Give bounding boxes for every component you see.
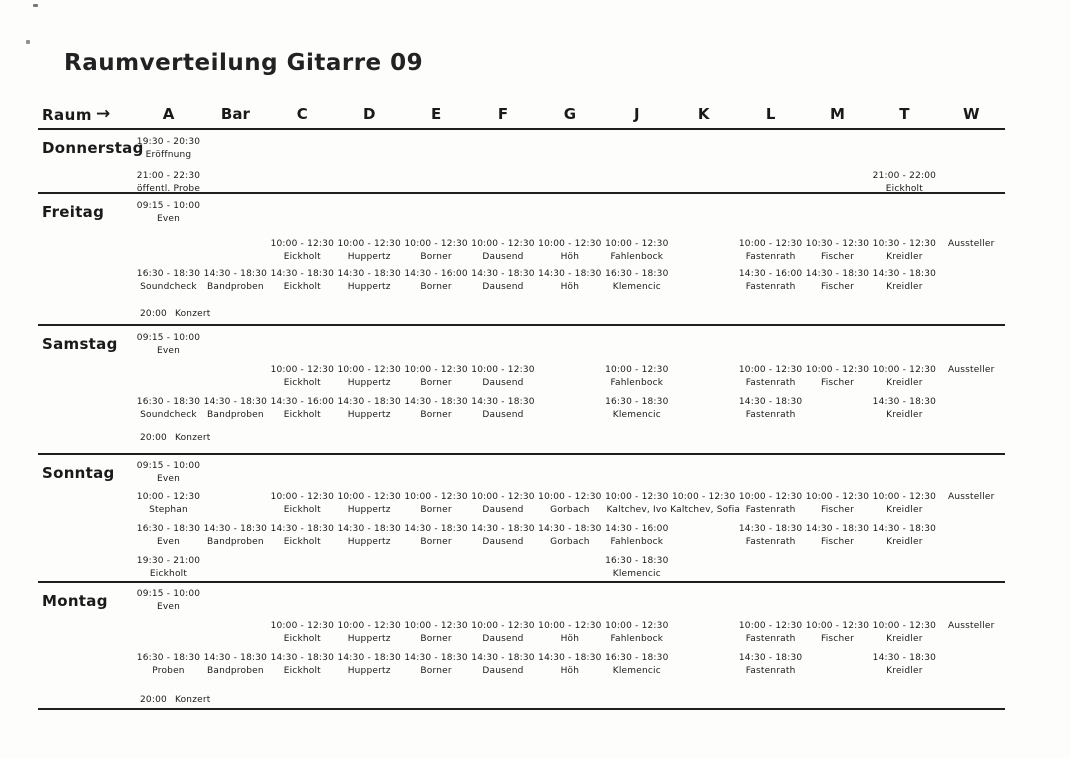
cell-person: Konzert [175, 694, 211, 707]
cell-time: 10:00 - 12:30 [336, 620, 403, 633]
scanned-schedule-page: { "document": { "title": "Raumverteilung… [0, 0, 1070, 758]
schedule-cell: 10:00 - 12:30Borner [403, 491, 470, 517]
schedule-cell: 14:30 - 18:30Dausend [470, 268, 537, 294]
cell-person: Eickholt [135, 568, 202, 581]
cell-person: Konzert [175, 432, 211, 445]
cell-time: 10:00 - 12:30 [603, 238, 670, 251]
schedule-cell: 20:00Konzert [135, 694, 280, 707]
schedule-cell: 21:00 - 22:30öffentl. Probe [135, 170, 202, 196]
schedule-cell: 14:30 - 18:30Bandproben [202, 396, 269, 422]
schedule-cell: 10:00 - 12:30Fahlenbock [603, 238, 670, 264]
schedule-cell: 14:30 - 18:30Dausend [470, 652, 537, 678]
cell-time: 14:30 - 18:30 [269, 652, 336, 665]
scan-artifact [33, 4, 38, 7]
schedule-cell: 10:00 - 12:30Huppertz [336, 238, 403, 264]
schedule-cell: 10:00 - 12:30Borner [403, 620, 470, 646]
cell-time: 20:00 [140, 432, 167, 445]
schedule-cell: Aussteller [938, 238, 1005, 251]
cell-time: 10:00 - 12:30 [804, 364, 871, 377]
cell-time: 14:30 - 18:30 [403, 652, 470, 665]
schedule-cell: 14:30 - 18:30Huppertz [336, 396, 403, 422]
cell-time: 10:00 - 12:30 [603, 491, 670, 504]
day-section-freitag: Freitag09:15 - 10:00Even10:00 - 12:30Eic… [38, 194, 1005, 326]
cell-time: 19:30 - 21:00 [135, 555, 202, 568]
cell-person: Dausend [470, 251, 537, 264]
cell-person: Konzert [175, 308, 211, 321]
cell-person: Aussteller [938, 238, 1005, 251]
cell-time: 10:00 - 12:30 [737, 364, 804, 377]
schedule-cell: 10:00 - 12:30Kreidler [871, 620, 938, 646]
schedule-cell: 14:30 - 18:30Fastenrath [737, 652, 804, 678]
cell-time: 10:30 - 12:30 [871, 238, 938, 251]
cell-person: Borner [403, 504, 470, 517]
cell-time: 19:30 - 20:30 [135, 136, 202, 149]
cell-time: 14:30 - 18:30 [737, 652, 804, 665]
schedule-cell: 10:00 - 12:30Dausend [470, 364, 537, 390]
cell-person: Kreidler [871, 281, 938, 294]
schedule-cell: 14:30 - 18:30Dausend [470, 396, 537, 422]
schedule-cell: 14:30 - 18:30Eickholt [269, 523, 336, 549]
cell-time: 10:00 - 12:30 [871, 620, 938, 633]
schedule-table: Raum → ABarCDEFGJKLMTW Donnerstag19:30 -… [38, 104, 1005, 710]
cell-time: 14:30 - 18:30 [536, 268, 603, 281]
cell-person: Fastenrath [737, 633, 804, 646]
cell-person: Kreidler [871, 251, 938, 264]
schedule-cell: 09:15 - 10:00Even [135, 460, 202, 486]
cell-time: 10:00 - 12:30 [871, 491, 938, 504]
column-header-a: A [135, 105, 202, 123]
cell-time: 14:30 - 18:30 [871, 396, 938, 409]
cell-time: 14:30 - 18:30 [336, 523, 403, 536]
cell-person: Höh [536, 281, 603, 294]
cell-time: 14:30 - 16:00 [737, 268, 804, 281]
cell-person: Borner [403, 665, 470, 678]
schedule-cell: 14:30 - 18:30Borner [403, 523, 470, 549]
cell-person: Soundcheck [135, 409, 202, 422]
column-header-m: M [804, 105, 871, 123]
schedule-cell: Aussteller [938, 620, 1005, 633]
cell-time: 10:00 - 12:30 [470, 238, 537, 251]
cell-person: Bandproben [202, 409, 269, 422]
column-header-k: K [670, 105, 737, 123]
cell-time: 14:30 - 18:30 [336, 396, 403, 409]
cell-time: 14:30 - 18:30 [403, 523, 470, 536]
cell-time: 10:00 - 12:30 [603, 364, 670, 377]
cell-person: Gorbach [536, 536, 603, 549]
schedule-cell: 19:30 - 21:00Eickholt [135, 555, 202, 581]
header-row: Raum → ABarCDEFGJKLMTW [38, 104, 1005, 130]
day-section-samstag: Samstag09:15 - 10:00Even10:00 - 12:30Eic… [38, 326, 1005, 455]
cell-person: Kreidler [871, 377, 938, 390]
cell-person: Fahlenbock [603, 377, 670, 390]
schedule-cell: 10:00 - 12:30Fischer [804, 364, 871, 390]
cell-time: 14:30 - 18:30 [536, 652, 603, 665]
cell-time: 10:00 - 12:30 [603, 620, 670, 633]
schedule-cell: 16:30 - 18:30Proben [135, 652, 202, 678]
cell-person: Dausend [470, 633, 537, 646]
cell-person: Dausend [470, 665, 537, 678]
schedule-cell: 10:00 - 12:30Dausend [470, 238, 537, 264]
cell-person: Even [135, 601, 202, 614]
cell-time: 14:30 - 18:30 [336, 652, 403, 665]
schedule-cell: 10:00 - 12:30Huppertz [336, 491, 403, 517]
schedule-cell: 14:30 - 18:30Gorbach [536, 523, 603, 549]
schedule-cell: 20:00Konzert [135, 308, 280, 321]
scan-artifact [26, 40, 30, 44]
cell-person: Fischer [804, 377, 871, 390]
schedule-cell: 14:30 - 18:30Fischer [804, 523, 871, 549]
cell-person: Fahlenbock [603, 633, 670, 646]
schedule-cell: 20:00Konzert [135, 432, 280, 445]
cell-person: Höh [536, 251, 603, 264]
schedule-cell: 14:30 - 18:30Kreidler [871, 268, 938, 294]
schedule-cell: 16:30 - 18:30Klemencic [603, 396, 670, 422]
schedule-cell: 14:30 - 18:30Eickholt [269, 652, 336, 678]
schedule-cell: 14:30 - 18:30Kreidler [871, 396, 938, 422]
cell-person: Klemencic [603, 568, 670, 581]
column-header-bar: Bar [202, 105, 269, 123]
schedule-cell: 16:30 - 18:30Klemencic [603, 652, 670, 678]
cell-person: Fastenrath [737, 377, 804, 390]
cell-time: 10:00 - 12:30 [269, 620, 336, 633]
schedule-cell: 10:00 - 12:30Dausend [470, 491, 537, 517]
cell-person: Eickholt [269, 377, 336, 390]
cell-person: Fischer [804, 251, 871, 264]
cell-person: Fastenrath [737, 409, 804, 422]
schedule-cell: 10:00 - 12:30Fastenrath [737, 620, 804, 646]
column-header-c: C [269, 105, 336, 123]
cell-person: Kreidler [871, 409, 938, 422]
cell-time: 10:00 - 12:30 [269, 491, 336, 504]
cell-time: 10:00 - 12:30 [269, 364, 336, 377]
day-section-sonntag: Sonntag09:15 - 10:00Even10:00 - 12:30Ste… [38, 455, 1005, 583]
cell-person: Huppertz [336, 281, 403, 294]
cell-time: 10:00 - 12:30 [336, 238, 403, 251]
cell-person: Höh [536, 665, 603, 678]
cell-time: 10:00 - 12:30 [536, 491, 603, 504]
cell-time: 10:00 - 12:30 [470, 620, 537, 633]
day-section-donnerstag: Donnerstag19:30 - 20:30Eröffnung21:00 - … [38, 130, 1005, 194]
cell-time: 21:00 - 22:00 [871, 170, 938, 183]
day-label: Samstag [42, 335, 134, 353]
column-header-j: J [603, 105, 670, 123]
schedule-cell: 10:00 - 12:30Huppertz [336, 364, 403, 390]
column-header-e: E [403, 105, 470, 123]
day-label: Freitag [42, 203, 134, 221]
cell-person: Borner [403, 409, 470, 422]
cell-person: Eröffnung [135, 149, 202, 162]
cell-person: Even [135, 536, 202, 549]
cell-time: 10:00 - 12:30 [737, 491, 804, 504]
cell-person: Eickholt [269, 633, 336, 646]
cell-time: 09:15 - 10:00 [135, 200, 202, 213]
schedule-cell: 19:30 - 20:30Eröffnung [135, 136, 202, 162]
cell-time: 16:30 - 18:30 [135, 652, 202, 665]
column-header-l: L [737, 105, 804, 123]
cell-person: Fischer [804, 281, 871, 294]
schedule-cell: 10:30 - 12:30Kreidler [871, 238, 938, 264]
cell-person: Eickholt [269, 665, 336, 678]
schedule-cell: 10:00 - 12:30Borner [403, 364, 470, 390]
schedule-cell: 10:00 - 12:30Eickholt [269, 620, 336, 646]
schedule-cell: 14:30 - 18:30Huppertz [336, 268, 403, 294]
cell-person: Fastenrath [737, 536, 804, 549]
cell-time: 14:30 - 18:30 [470, 268, 537, 281]
cell-person: Gorbach [536, 504, 603, 517]
cell-time: 14:30 - 18:30 [336, 268, 403, 281]
cell-time: 10:00 - 12:30 [804, 491, 871, 504]
schedule-cell: 09:15 - 10:00Even [135, 332, 202, 358]
header-row-label: Raum [42, 106, 92, 124]
cell-time: 10:00 - 12:30 [737, 620, 804, 633]
cell-person: Bandproben [202, 536, 269, 549]
day-label: Donnerstag [42, 139, 134, 157]
schedule-cell: 16:30 - 18:30Klemencic [603, 555, 670, 581]
schedule-cell: 10:00 - 12:30Kaltchev, Sofia [670, 491, 737, 517]
cell-time: 14:30 - 18:30 [871, 523, 938, 536]
cell-time: 14:30 - 18:30 [871, 268, 938, 281]
schedule-cell: 14:30 - 18:30Borner [403, 652, 470, 678]
cell-person: Borner [403, 377, 470, 390]
cell-time: 16:30 - 18:30 [603, 396, 670, 409]
cell-time: 10:00 - 12:30 [403, 620, 470, 633]
schedule-cell: 14:30 - 18:30Huppertz [336, 523, 403, 549]
cell-time: 14:30 - 18:30 [804, 268, 871, 281]
schedule-cell: 10:30 - 12:30Fischer [804, 238, 871, 264]
cell-time: 14:30 - 18:30 [202, 523, 269, 536]
schedule-cell: Aussteller [938, 364, 1005, 377]
schedule-cell: 14:30 - 18:30Fischer [804, 268, 871, 294]
cell-time: 10:00 - 12:30 [470, 364, 537, 377]
schedule-cell: 09:15 - 10:00Even [135, 200, 202, 226]
cell-time: 10:00 - 12:30 [536, 238, 603, 251]
schedule-cell: 10:00 - 12:30Höh [536, 238, 603, 264]
cell-person: Dausend [470, 409, 537, 422]
schedule-cell: 14:30 - 18:30Fastenrath [737, 396, 804, 422]
schedule-cell: 10:00 - 12:30Eickholt [269, 238, 336, 264]
schedule-cell: 10:00 - 12:30Fastenrath [737, 491, 804, 517]
cell-person: Huppertz [336, 665, 403, 678]
schedule-cell: 21:00 - 22:00Eickholt [871, 170, 938, 196]
cell-person: Kaltchev, Ivo [603, 504, 670, 517]
cell-time: 10:00 - 12:30 [737, 238, 804, 251]
cell-time: 14:30 - 18:30 [804, 523, 871, 536]
cell-person: Eickholt [269, 536, 336, 549]
schedule-cell: 14:30 - 16:00Fahlenbock [603, 523, 670, 549]
cell-person: Aussteller [938, 491, 1005, 504]
cell-person: Borner [403, 633, 470, 646]
cell-person: Klemencic [603, 665, 670, 678]
cell-time: 14:30 - 18:30 [871, 652, 938, 665]
cell-person: Soundcheck [135, 281, 202, 294]
cell-person: Eickholt [269, 251, 336, 264]
cell-person: Kreidler [871, 504, 938, 517]
cell-time: 10:00 - 12:30 [536, 620, 603, 633]
page-title: Raumverteilung Gitarre 09 [64, 50, 423, 76]
cell-time: 10:00 - 12:30 [336, 364, 403, 377]
cell-time: 10:00 - 12:30 [470, 491, 537, 504]
cell-time: 10:00 - 12:30 [403, 491, 470, 504]
cell-person: Dausend [470, 281, 537, 294]
cell-time: 10:00 - 12:30 [403, 364, 470, 377]
cell-person: Fahlenbock [603, 251, 670, 264]
column-header-d: D [336, 105, 403, 123]
schedule-cell: 14:30 - 18:30Höh [536, 268, 603, 294]
schedule-cell: 14:30 - 18:30Bandproben [202, 652, 269, 678]
schedule-cell: 14:30 - 18:30Fastenrath [737, 523, 804, 549]
schedule-cell: 09:15 - 10:00Even [135, 588, 202, 614]
cell-time: 14:30 - 18:30 [737, 523, 804, 536]
cell-person: Fahlenbock [603, 536, 670, 549]
cell-person: Aussteller [938, 620, 1005, 633]
cell-person: Klemencic [603, 281, 670, 294]
cell-time: 20:00 [140, 694, 167, 707]
cell-person: Fastenrath [737, 251, 804, 264]
schedule-cell: 14:30 - 18:30Eickholt [269, 268, 336, 294]
schedule-cell: Aussteller [938, 491, 1005, 504]
schedule-cell: 10:00 - 12:30Höh [536, 620, 603, 646]
cell-time: 09:15 - 10:00 [135, 332, 202, 345]
cell-person: Borner [403, 536, 470, 549]
schedule-cell: 14:30 - 16:00Eickholt [269, 396, 336, 422]
schedule-cell: 14:30 - 18:30Bandproben [202, 523, 269, 549]
column-header-t: T [871, 105, 938, 123]
cell-time: 16:30 - 18:30 [135, 523, 202, 536]
cell-time: 10:00 - 12:30 [336, 491, 403, 504]
cell-time: 10:00 - 12:30 [804, 620, 871, 633]
cell-person: Borner [403, 251, 470, 264]
cell-time: 16:30 - 18:30 [603, 652, 670, 665]
schedule-cell: 10:00 - 12:30Fahlenbock [603, 364, 670, 390]
cell-time: 10:00 - 12:30 [403, 238, 470, 251]
schedule-cell: 14:30 - 18:30Höh [536, 652, 603, 678]
cell-person: Huppertz [336, 536, 403, 549]
cell-person: Kreidler [871, 536, 938, 549]
cell-time: 14:30 - 18:30 [202, 268, 269, 281]
cell-person: Borner [403, 281, 470, 294]
cell-person: Aussteller [938, 364, 1005, 377]
cell-time: 16:30 - 18:30 [603, 555, 670, 568]
cell-time: 14:30 - 18:30 [269, 268, 336, 281]
cell-time: 16:30 - 18:30 [135, 396, 202, 409]
cell-person: Bandproben [202, 281, 269, 294]
cell-time: 14:30 - 16:00 [269, 396, 336, 409]
column-header-f: F [470, 105, 537, 123]
schedule-cell: 14:30 - 18:30Huppertz [336, 652, 403, 678]
cell-time: 10:00 - 12:30 [670, 491, 737, 504]
cell-person: Huppertz [336, 633, 403, 646]
schedule-cell: 10:00 - 12:30Fahlenbock [603, 620, 670, 646]
cell-time: 10:00 - 12:30 [269, 238, 336, 251]
cell-time: 14:30 - 18:30 [470, 652, 537, 665]
cell-time: 14:30 - 18:30 [470, 523, 537, 536]
right-arrow-icon: → [96, 104, 110, 124]
day-label: Sonntag [42, 464, 134, 482]
cell-time: 16:30 - 18:30 [603, 268, 670, 281]
cell-time: 14:30 - 16:00 [403, 268, 470, 281]
cell-time: 14:30 - 18:30 [536, 523, 603, 536]
cell-time: 20:00 [140, 308, 167, 321]
cell-time: 14:30 - 18:30 [470, 396, 537, 409]
cell-person: Huppertz [336, 409, 403, 422]
schedule-cell: 10:00 - 12:30Borner [403, 238, 470, 264]
schedule-cell: 10:00 - 12:30Eickholt [269, 491, 336, 517]
day-label: Montag [42, 592, 134, 610]
schedule-cell: 16:30 - 18:30Even [135, 523, 202, 549]
cell-time: 10:30 - 12:30 [804, 238, 871, 251]
schedule-cell: 14:30 - 18:30Kreidler [871, 523, 938, 549]
cell-person: Even [135, 213, 202, 226]
cell-person: Fastenrath [737, 665, 804, 678]
cell-person: Kreidler [871, 665, 938, 678]
cell-person: Huppertz [336, 504, 403, 517]
cell-time: 14:30 - 18:30 [737, 396, 804, 409]
schedule-cell: 16:30 - 18:30Klemencic [603, 268, 670, 294]
schedule-cell: 10:00 - 12:30Kreidler [871, 491, 938, 517]
cell-person: Eickholt [269, 504, 336, 517]
cell-person: Eickholt [269, 409, 336, 422]
schedule-cell: 14:30 - 18:30Bandproben [202, 268, 269, 294]
cell-time: 16:30 - 18:30 [135, 268, 202, 281]
schedule-cell: 10:00 - 12:30Stephan [135, 491, 202, 517]
schedule-cell: 10:00 - 12:30Kreidler [871, 364, 938, 390]
column-header-w: W [938, 105, 1005, 123]
cell-time: 14:30 - 16:00 [603, 523, 670, 536]
schedule-cell: 14:30 - 18:30Kreidler [871, 652, 938, 678]
schedule-cell: 14:30 - 16:00Borner [403, 268, 470, 294]
cell-person: Kreidler [871, 633, 938, 646]
cell-time: 10:00 - 12:30 [871, 364, 938, 377]
cell-time: 09:15 - 10:00 [135, 588, 202, 601]
cell-person: Huppertz [336, 251, 403, 264]
cell-person: Even [135, 345, 202, 358]
cell-person: Dausend [470, 504, 537, 517]
schedule-cell: 14:30 - 18:30Dausend [470, 523, 537, 549]
schedule-cell: 10:00 - 12:30Kaltchev, Ivo [603, 491, 670, 517]
cell-person: Fischer [804, 536, 871, 549]
cell-person: Fastenrath [737, 504, 804, 517]
cell-person: Bandproben [202, 665, 269, 678]
cell-person: Eickholt [269, 281, 336, 294]
schedule-body: Donnerstag19:30 - 20:30Eröffnung21:00 - … [38, 130, 1005, 710]
cell-time: 14:30 - 18:30 [202, 396, 269, 409]
cell-time: 14:30 - 18:30 [202, 652, 269, 665]
cell-time: 14:30 - 18:30 [269, 523, 336, 536]
schedule-cell: 16:30 - 18:30Soundcheck [135, 268, 202, 294]
column-header-g: G [536, 105, 603, 123]
cell-time: 10:00 - 12:30 [135, 491, 202, 504]
schedule-cell: 10:00 - 12:30Fastenrath [737, 364, 804, 390]
day-section-montag: Montag09:15 - 10:00Even10:00 - 12:30Eick… [38, 583, 1005, 710]
schedule-cell: 14:30 - 18:30Borner [403, 396, 470, 422]
schedule-cell: 10:00 - 12:30Gorbach [536, 491, 603, 517]
schedule-cell: 14:30 - 16:00Fastenrath [737, 268, 804, 294]
schedule-cell: 16:30 - 18:30Soundcheck [135, 396, 202, 422]
schedule-cell: 10:00 - 12:30Fastenrath [737, 238, 804, 264]
schedule-cell: 10:00 - 12:30Eickholt [269, 364, 336, 390]
cell-person: Klemencic [603, 409, 670, 422]
cell-person: Dausend [470, 536, 537, 549]
schedule-cell: 10:00 - 12:30Dausend [470, 620, 537, 646]
schedule-cell: 10:00 - 12:30Huppertz [336, 620, 403, 646]
cell-person: Stephan [135, 504, 202, 517]
cell-person: Fastenrath [737, 281, 804, 294]
cell-time: 21:00 - 22:30 [135, 170, 202, 183]
cell-person: Dausend [470, 377, 537, 390]
cell-person: Fischer [804, 504, 871, 517]
cell-person: Huppertz [336, 377, 403, 390]
cell-time: 14:30 - 18:30 [403, 396, 470, 409]
